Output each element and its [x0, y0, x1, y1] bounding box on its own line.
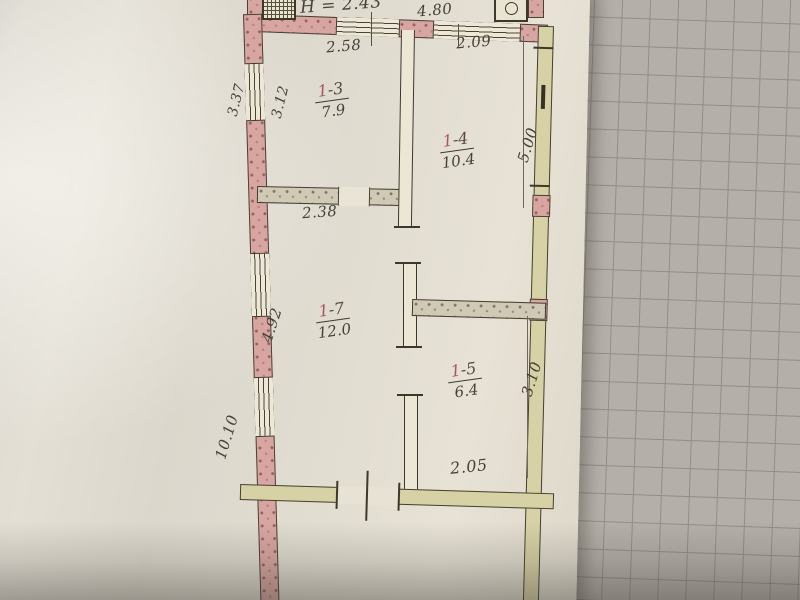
ink-mark: [541, 85, 546, 109]
door-opening-room13: [338, 187, 370, 207]
dim-hall-width: 2.38: [301, 202, 338, 222]
door-tick: [395, 262, 421, 264]
window-room13-icon: [336, 17, 401, 37]
interior-vertical-wall-lower: [404, 396, 418, 492]
dim-left-outer-upper: 3.37: [225, 82, 249, 118]
dim-room13-width: 2.58: [325, 35, 362, 56]
dim-room15-width: 2.05: [449, 455, 488, 478]
dimension-line-3.10: [527, 316, 528, 478]
interior-vertical-wall-upper: [398, 30, 415, 228]
room-label-1-3: 1-3 7.9: [312, 78, 351, 122]
top-right-wall-stub: [528, 0, 544, 18]
room-label-1-4: 1-4 10.4: [437, 128, 476, 172]
dim-left-outer-lower: 10.10: [211, 413, 242, 462]
dimension-line-5.00: [523, 36, 524, 208]
door-tick: [397, 394, 423, 396]
right-wall-tick-upper: [533, 47, 553, 50]
door-tick: [336, 481, 339, 509]
dim-top-overall: 4.80: [416, 0, 453, 21]
room-label-1-7: 1-7 12.0: [313, 298, 352, 342]
flue-symbol-icon: [262, 0, 296, 20]
dim-room13-height: 3.12: [269, 84, 293, 120]
bottom-interior-wall: [240, 484, 554, 509]
stove-circle-icon: [505, 2, 518, 15]
window-left-lower-icon: [254, 377, 275, 438]
door-tick: [398, 483, 401, 511]
right-wall-pink-junction-upper: [532, 195, 551, 217]
dim-room14-width: 2.09: [455, 31, 492, 52]
dimension-tick-top: [371, 12, 372, 46]
right-wall-tick-lower: [530, 185, 550, 188]
ceiling-height-note: Н = 2.43: [299, 0, 382, 18]
stove-symbol-icon: [494, 0, 528, 22]
door-tick: [394, 226, 420, 228]
floor-plan: Н = 2.43 4.80 2.58 2.09 3.37 3.12 5.00 2…: [0, 0, 800, 600]
photo-scene: Н = 2.43 4.80 2.58 2.09 3.37 3.12 5.00 2…: [0, 0, 800, 600]
room-label-1-5: 1-5 6.4: [445, 358, 484, 402]
door-tick: [396, 346, 422, 348]
window-left-upper-icon: [244, 63, 265, 122]
